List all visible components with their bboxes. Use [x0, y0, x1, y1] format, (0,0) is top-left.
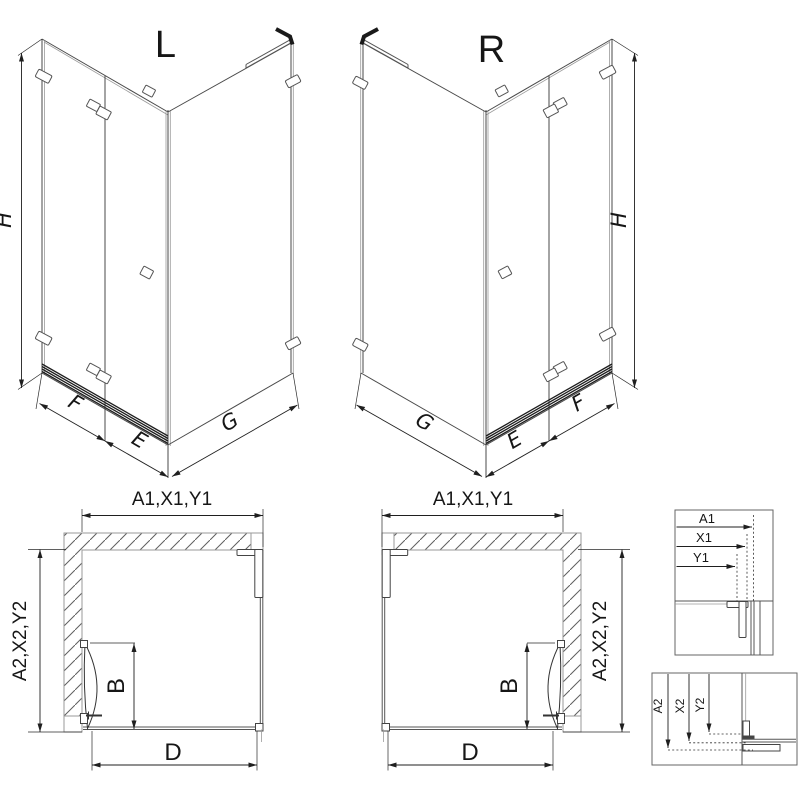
plan-view-right: A1,X1,Y1 A2,X2,Y2 B D [382, 489, 630, 771]
wall-end-cap [64, 716, 82, 732]
wall-clip-icon [352, 76, 368, 90]
wall-clip-icon [352, 338, 368, 352]
wall-end-cap [382, 533, 394, 550]
glass-panels-plan [83, 550, 263, 743]
door-hinge-icon [81, 641, 88, 648]
detail-label-a1: A1 [699, 511, 715, 526]
plan-view-left: A1,X1,Y1 A2,X2,Y2 B D [10, 489, 263, 771]
wall-clip-icon [35, 331, 52, 346]
dim-side: G [172, 373, 299, 477]
wall-profile-bracket [255, 550, 263, 598]
corner-bracket-icon [495, 85, 508, 97]
detail-label-x2: X2 [673, 698, 687, 713]
dim-label-front: D [164, 739, 181, 766]
dim-label-height: H [607, 212, 631, 228]
door-hinge-icon [558, 641, 565, 648]
dim-label-depth: A2,X2,Y2 [590, 601, 611, 681]
wall-clip-icon [599, 65, 616, 80]
view-label-left: L [155, 24, 177, 66]
wall-clip-icon [285, 74, 301, 88]
wall-end-cap [251, 533, 263, 550]
glass-panels [361, 39, 612, 478]
handle-knob-icon [140, 266, 154, 279]
wall-profile-bracket [743, 721, 750, 736]
detail-label-y2: Y2 [693, 697, 707, 712]
wall-end-cap [563, 716, 581, 732]
drawing-svg: H F E G L [0, 0, 800, 800]
wall-clip-icon [599, 327, 616, 342]
dim-label-width: A1,X1,Y1 [132, 489, 212, 510]
dim-label-side: G [411, 407, 437, 436]
dim-label-height: H [0, 212, 16, 228]
iso-view-right: H E F G R [352, 29, 638, 478]
dim-label-fixed: E [128, 426, 152, 454]
iso-view-left: H F E G L [0, 24, 301, 478]
handle-knob-icon [498, 266, 512, 279]
dim-label-fixed: E [503, 426, 527, 454]
detail-label-x1: X1 [696, 530, 712, 545]
detail-box-width: A1 X1 Y1 [675, 510, 773, 655]
wall-clip-icon [285, 336, 301, 350]
wall-profile-bracket [739, 602, 746, 638]
detail-label-a2: A2 [651, 698, 665, 713]
dim-front-width: D [92, 731, 257, 771]
dim-label-door: B [103, 678, 130, 694]
door-swing [81, 641, 103, 729]
dim-label-door: F [64, 390, 87, 417]
dim-label-width: A1,X1,Y1 [433, 489, 513, 510]
dim-label-front: D [461, 739, 478, 766]
wall-clip-icon [35, 69, 52, 84]
detail-box-depth: A2 X2 Y2 [651, 673, 797, 765]
glass-panels [42, 39, 293, 478]
dim-front-width: D [388, 731, 553, 771]
detail-label-y1: Y1 [693, 550, 709, 565]
dim-label-door: B [496, 678, 523, 694]
hinges-and-clips [352, 65, 616, 382]
dim-label-depth: A2,X2,Y2 [10, 601, 31, 681]
wall-profile-bracket [382, 550, 390, 598]
dim-label-side: G [216, 407, 242, 436]
dim-side: G [355, 373, 482, 477]
dim-label-door: F [567, 389, 590, 416]
wall-support-arm-icon [362, 29, 379, 45]
wall-support-arm-icon [276, 29, 293, 45]
view-label-right: R [478, 29, 506, 71]
corner-bracket-icon [142, 85, 155, 97]
technical-drawing-sheet: H F E G L [0, 0, 800, 800]
glass-panels-plan [382, 550, 562, 743]
door-swing [543, 641, 565, 729]
